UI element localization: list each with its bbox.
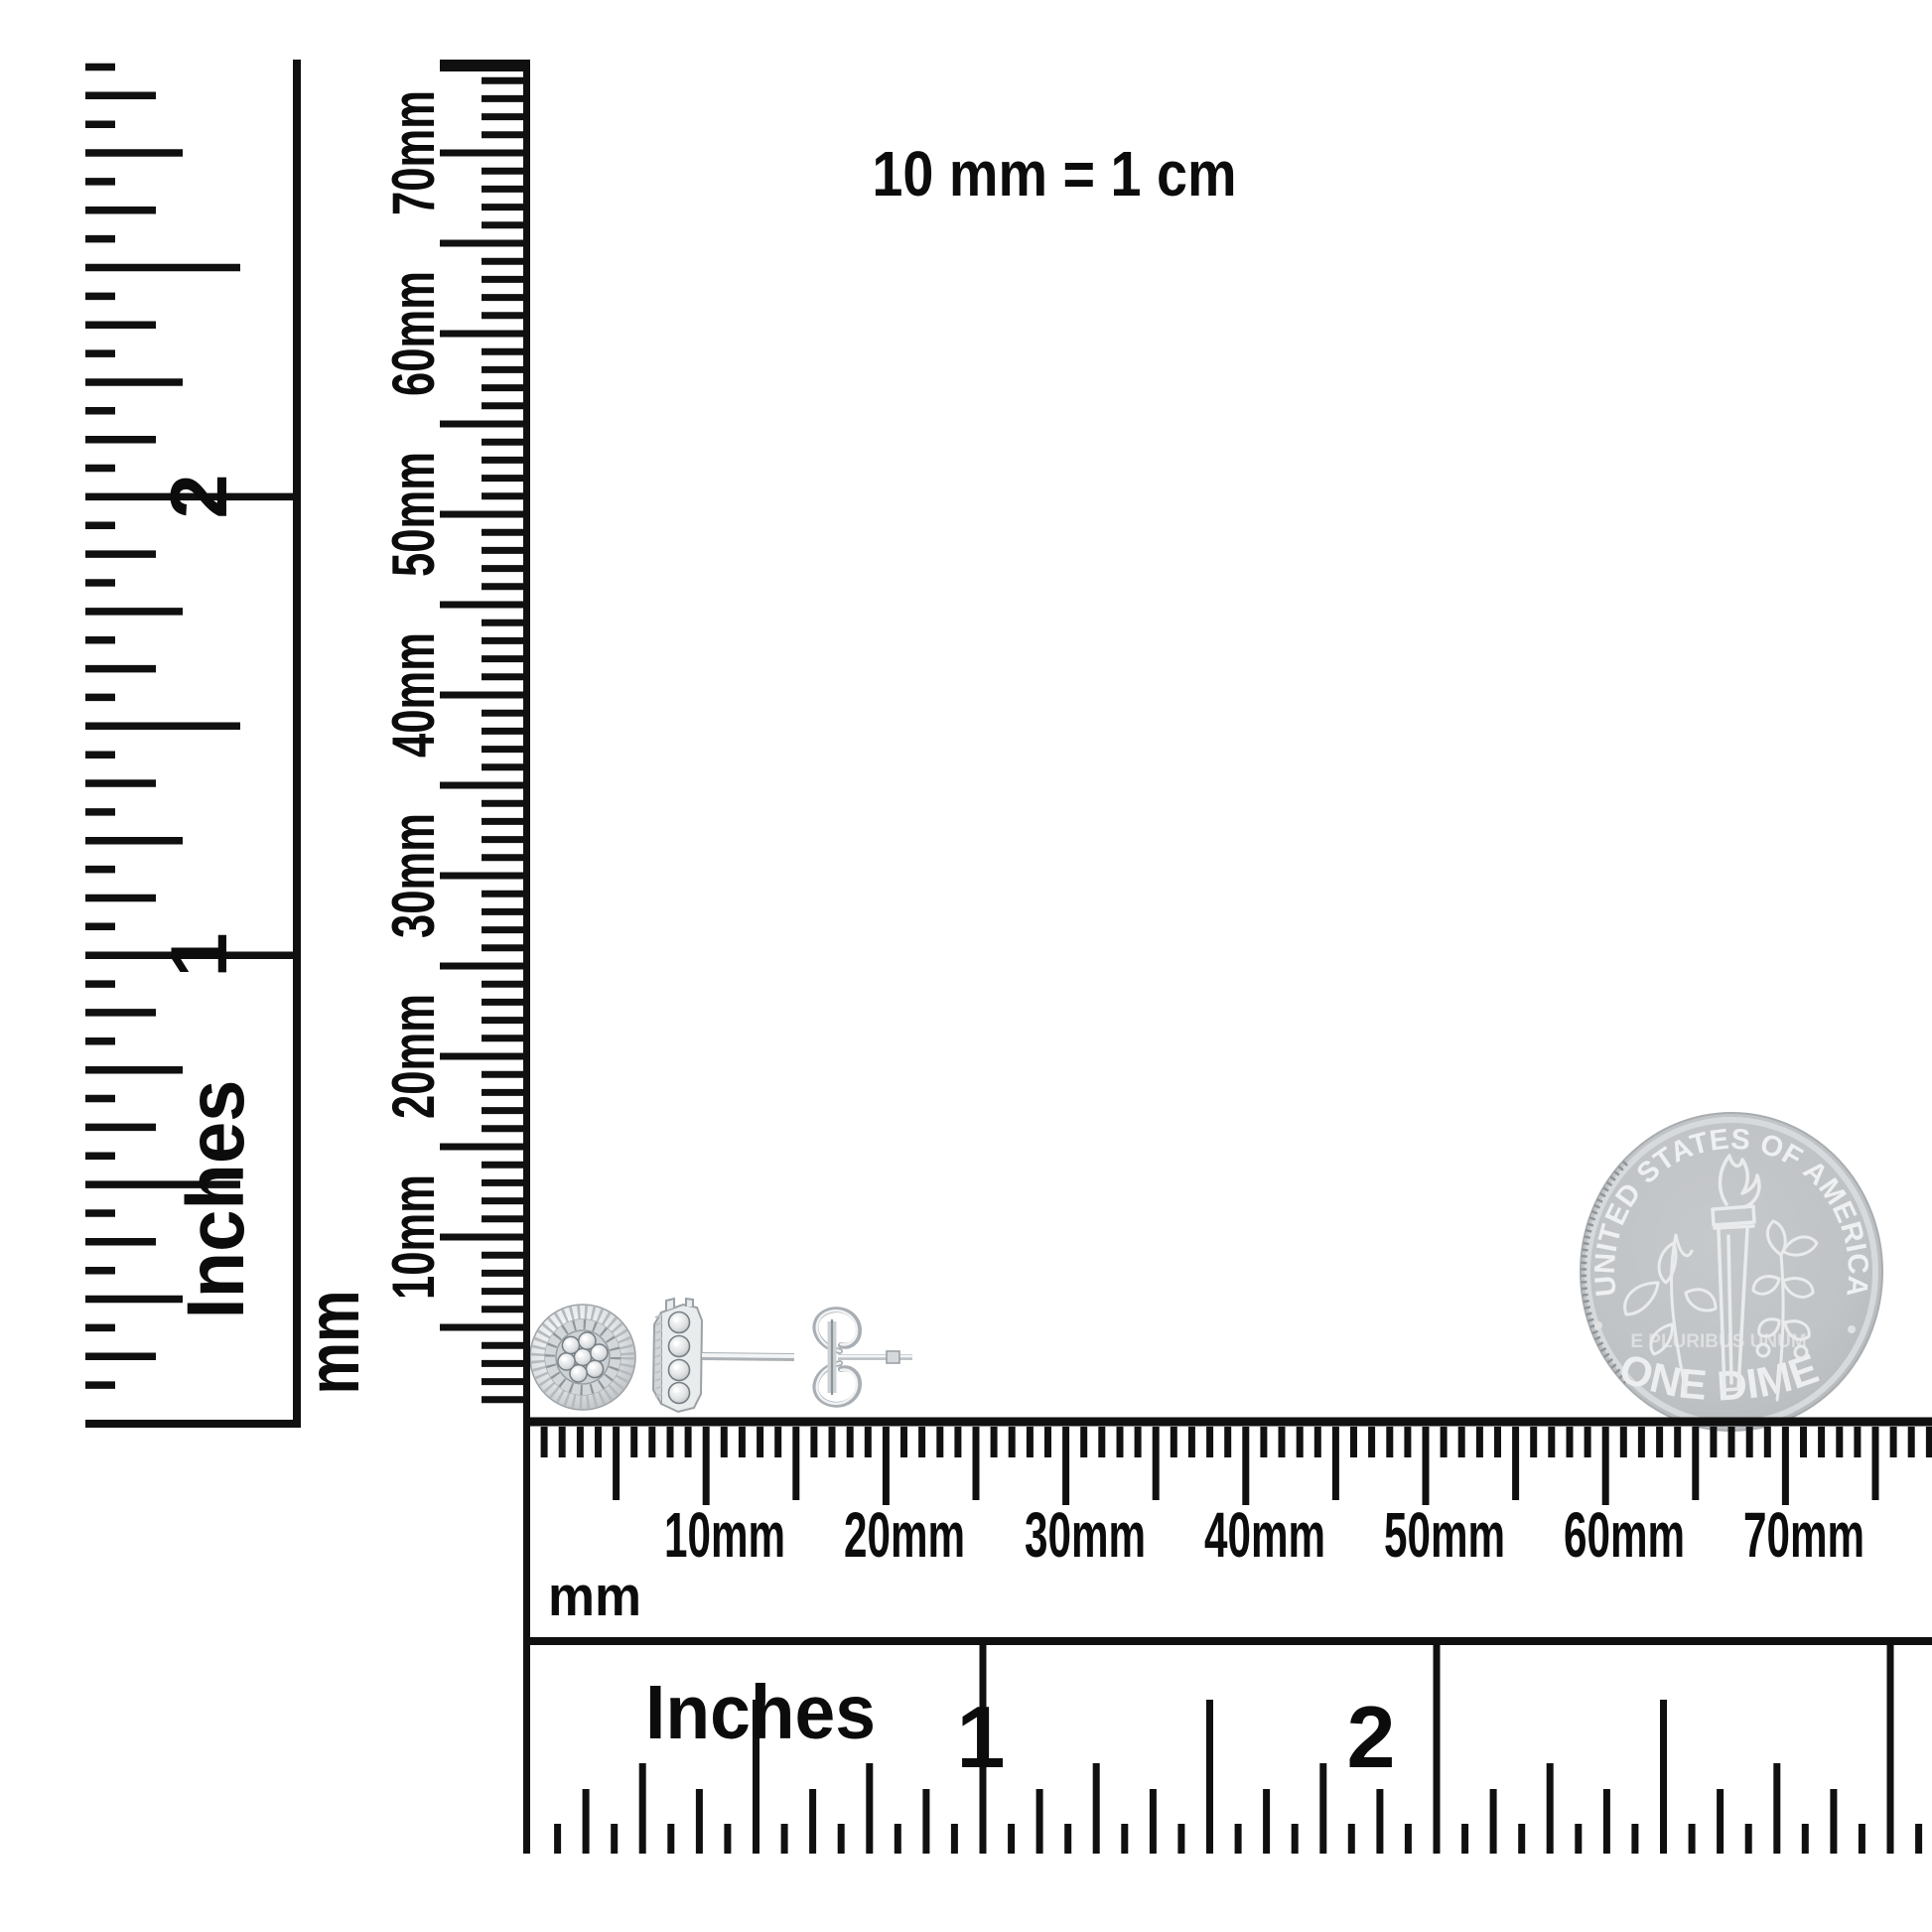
svg-text:60mm: 60mm	[1564, 1500, 1685, 1571]
svg-text:40mm: 40mm	[381, 632, 447, 758]
svg-text:50mm: 50mm	[1384, 1500, 1505, 1571]
svg-text:70mm: 70mm	[1743, 1500, 1864, 1571]
svg-text:30mm: 30mm	[1025, 1500, 1146, 1571]
svg-text:2: 2	[155, 474, 244, 518]
svg-text:mm: mm	[548, 1564, 641, 1627]
svg-text:Inches: Inches	[645, 1669, 876, 1754]
svg-text:10 mm = 1 cm: 10 mm = 1 cm	[872, 138, 1236, 208]
svg-text:20mm: 20mm	[381, 994, 447, 1119]
svg-text:10mm: 10mm	[664, 1500, 785, 1571]
svg-text:50mm: 50mm	[381, 452, 447, 577]
svg-text:E PLURIBUS UNUM: E PLURIBUS UNUM	[1630, 1331, 1806, 1352]
svg-text:Inches: Inches	[169, 1080, 260, 1319]
svg-text:40mm: 40mm	[1204, 1500, 1325, 1571]
svg-text:2: 2	[1347, 1688, 1396, 1786]
svg-text:60mm: 60mm	[381, 271, 447, 396]
svg-text:10mm: 10mm	[381, 1174, 447, 1300]
svg-text:1: 1	[957, 1688, 1006, 1786]
svg-text:20mm: 20mm	[844, 1500, 965, 1571]
svg-text:70mm: 70mm	[381, 90, 447, 215]
svg-text:30mm: 30mm	[381, 813, 447, 938]
svg-text:1: 1	[155, 932, 244, 977]
svg-text:mm: mm	[293, 1290, 375, 1394]
